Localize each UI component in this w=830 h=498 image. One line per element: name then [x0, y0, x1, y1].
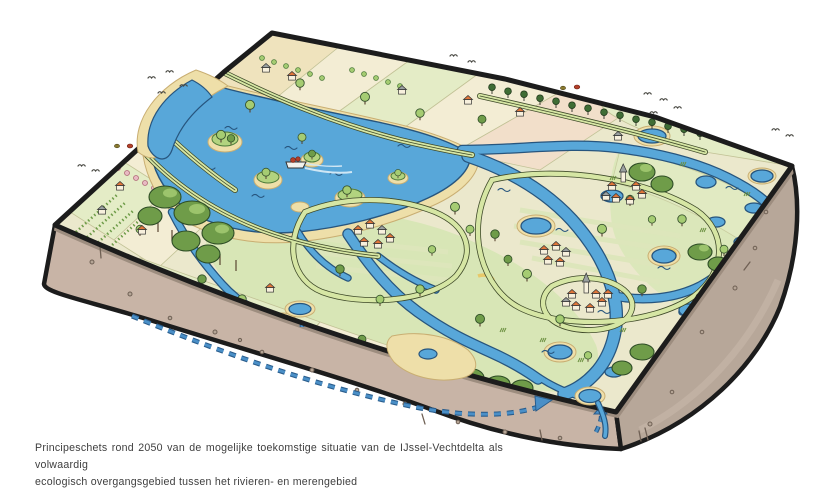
caption-line-2: ecologisch overgangsgebied tussen het ri… — [35, 474, 503, 491]
caption: Principeschets rond 2050 van de mogelijk… — [35, 440, 503, 491]
delta-illustration — [0, 0, 830, 498]
caption-line-1: Principeschets rond 2050 van de mogelijk… — [35, 440, 503, 474]
page: Principeschets rond 2050 van de mogelijk… — [0, 0, 830, 498]
